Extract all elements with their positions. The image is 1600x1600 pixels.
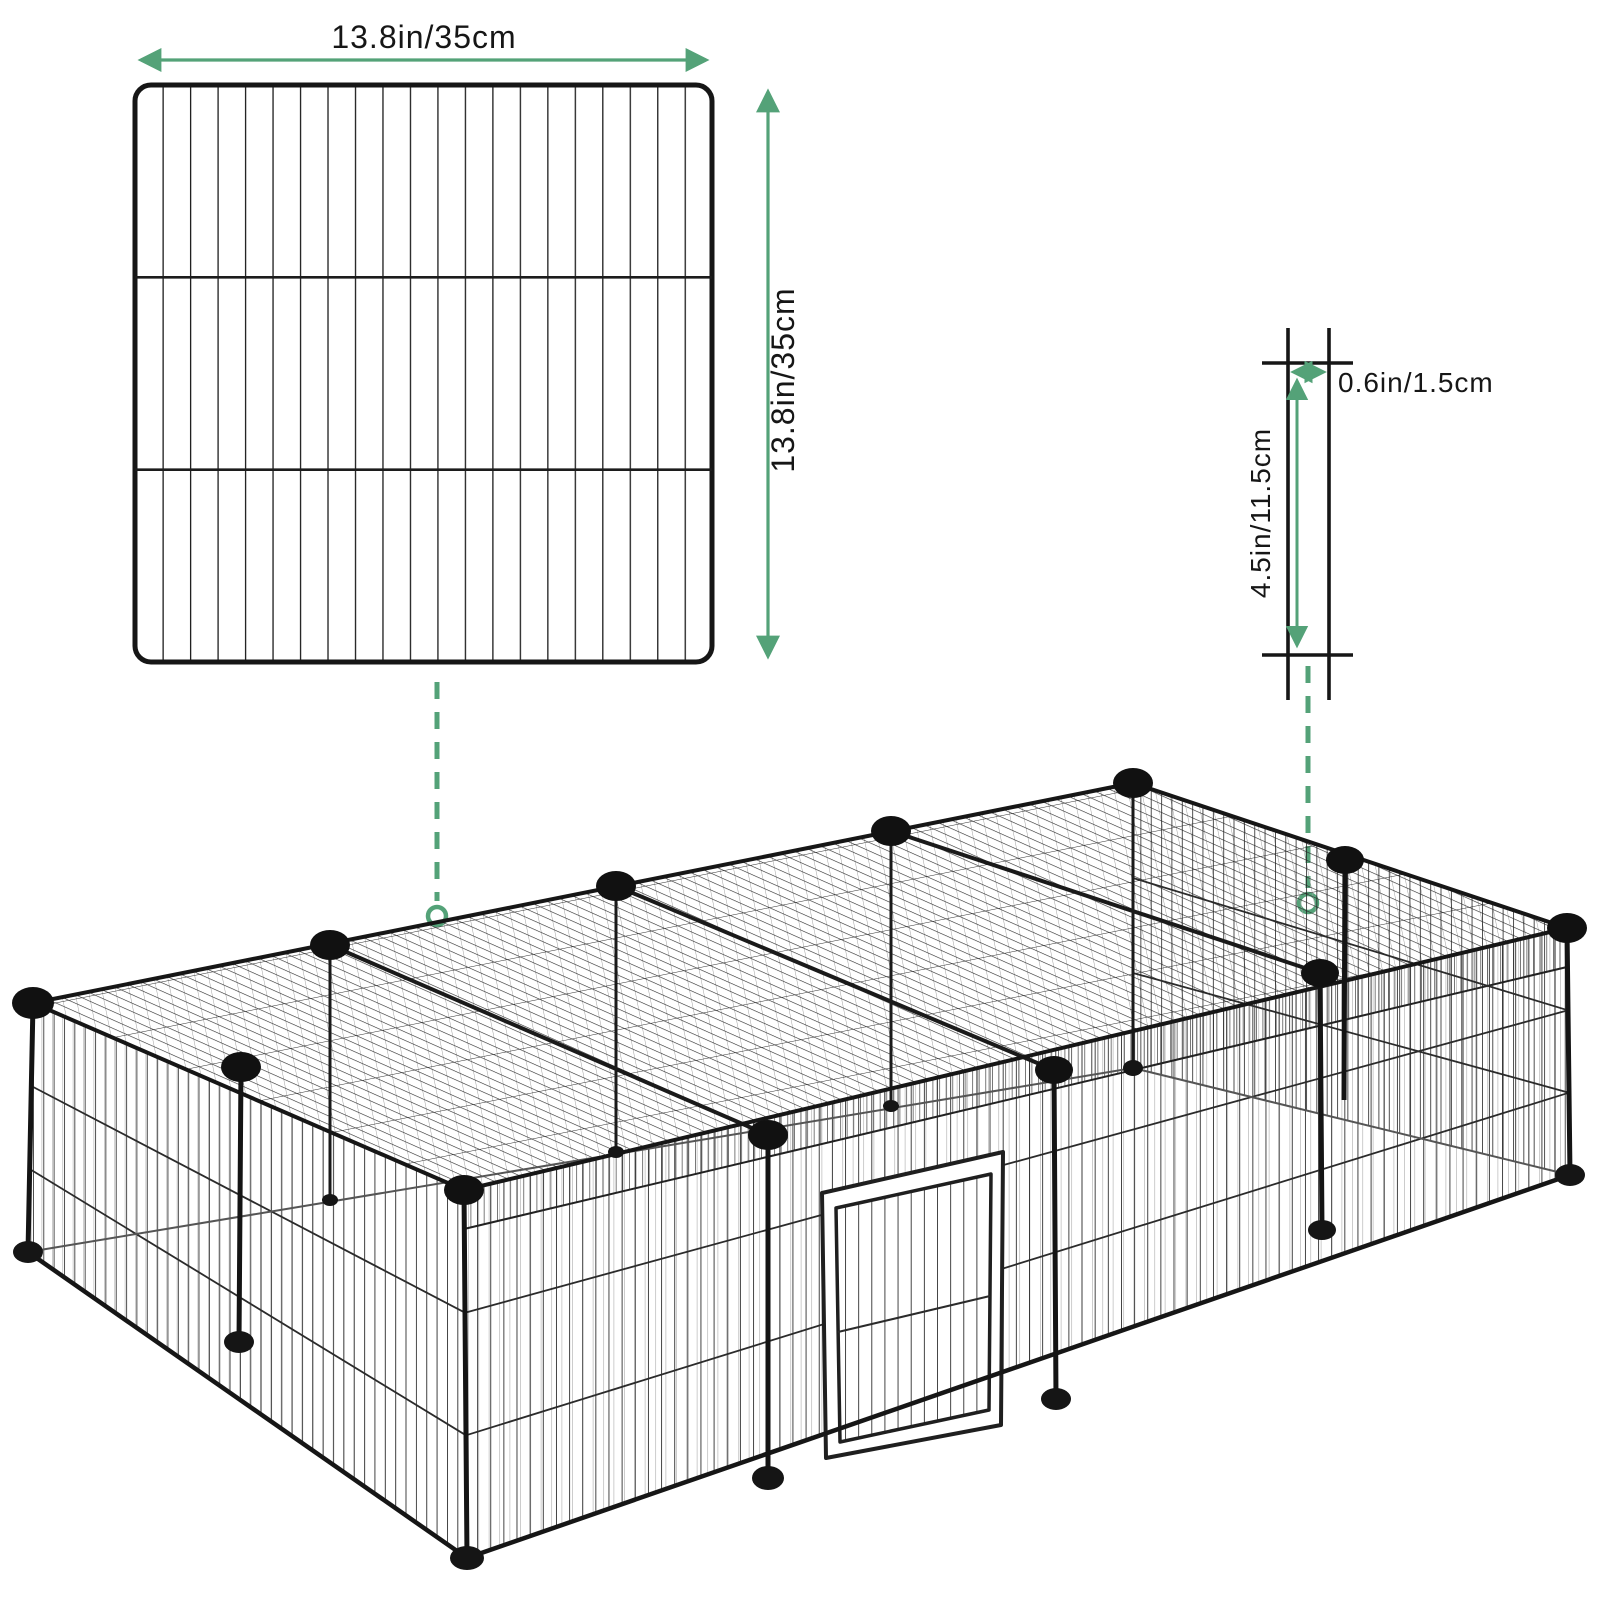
connector-ball	[748, 1120, 788, 1150]
foot-connector	[752, 1466, 784, 1490]
foot-connector	[450, 1546, 484, 1570]
connector-ball	[1301, 959, 1339, 987]
panel-height-dimension: 13.8in/35cm	[765, 92, 801, 656]
connector-ball	[1113, 768, 1153, 798]
foot-connector	[608, 1146, 624, 1158]
foot-connector	[224, 1331, 254, 1353]
foot-connector	[13, 1241, 43, 1263]
playpen-assembly	[12, 768, 1587, 1570]
connector-ball	[871, 816, 911, 846]
playpen-door	[822, 1152, 1003, 1458]
foot-connector	[1041, 1388, 1071, 1410]
panel-width-dimension: 13.8in/35cm	[141, 19, 706, 60]
connector-ball	[221, 1052, 261, 1082]
foot-connector	[883, 1100, 899, 1112]
foot-connector	[322, 1194, 338, 1206]
diagram-canvas: 13.8in/35cm 13.8in/35cm 0.6in/1.5cm 4.5i…	[0, 0, 1600, 1600]
panel-width-label: 13.8in/35cm	[331, 19, 516, 55]
connector-ball	[1326, 846, 1364, 874]
panel-height-label: 13.8in/35cm	[765, 287, 801, 472]
foot-connector	[1308, 1220, 1336, 1240]
product-dimension-figure: 13.8in/35cm 13.8in/35cm 0.6in/1.5cm 4.5i…	[0, 0, 1600, 1600]
connector-ball	[12, 987, 54, 1019]
panel-frame	[135, 85, 712, 662]
panel-front-view	[135, 85, 712, 662]
cell-width-label: 0.6in/1.5cm	[1338, 367, 1494, 398]
foot-connector	[1555, 1164, 1585, 1186]
connector-ball	[310, 930, 350, 960]
connector-ball	[444, 1175, 484, 1205]
leader-from-panel	[428, 682, 446, 925]
connector-ball	[1035, 1056, 1073, 1084]
cell-height-label: 4.5in/11.5cm	[1245, 428, 1276, 598]
grid-spacing-detail: 0.6in/1.5cm 4.5in/11.5cm	[1245, 328, 1494, 700]
detail-vertical-wires	[1288, 328, 1329, 700]
connector-ball	[1547, 913, 1587, 943]
foot-connector	[1123, 1060, 1143, 1076]
connector-ball	[596, 871, 636, 901]
